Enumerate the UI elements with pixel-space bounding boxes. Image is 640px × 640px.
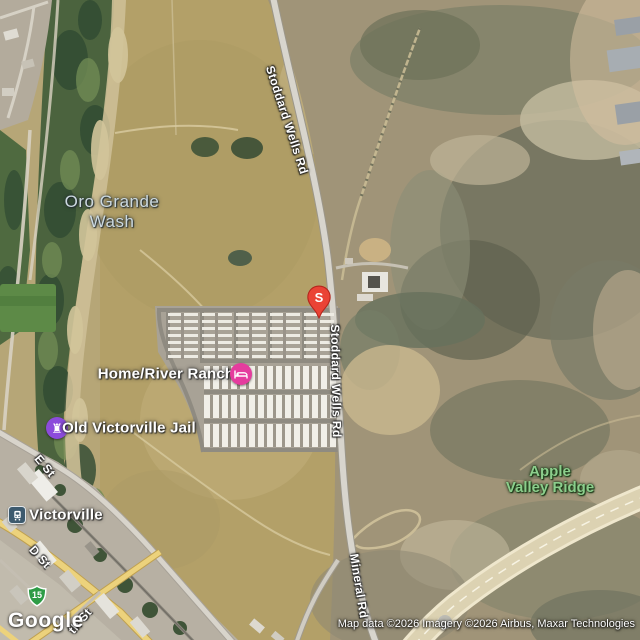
interstate-15-shield: 15 (27, 585, 47, 607)
castle-rook-glyph: ♜ (51, 422, 63, 435)
map-attribution: Map data ©2026 Imagery ©2026 Airbus, Max… (338, 618, 635, 630)
trailer-cluster (168, 313, 198, 359)
label-home-river-ranch[interactable]: Home/River Ranch (98, 366, 235, 383)
shield-route-number: 15 (27, 590, 47, 600)
train-icon (12, 510, 23, 521)
google-logo[interactable]: Google (8, 609, 84, 633)
label-stoddard-wells-rd-mid: Stoddard Wells Rd (328, 324, 344, 437)
label-old-victorville-jail[interactable]: Old Victorville Jail (62, 420, 196, 437)
trailer-row (204, 395, 336, 418)
label-oro-grande-wash: Oro Grande Wash (65, 192, 160, 232)
trailer-cluster (236, 313, 266, 359)
label-apple-valley-ridge: Apple Valley Ridge (506, 464, 594, 496)
lodging-icon[interactable] (230, 363, 252, 385)
bed-icon (234, 369, 248, 380)
trailer-cluster (202, 313, 232, 359)
transit-station-icon[interactable] (8, 506, 26, 524)
trailer-row (204, 424, 336, 447)
marker-label: S (306, 290, 332, 305)
terrain-grass-field (0, 284, 56, 332)
map-marker[interactable]: S (306, 285, 332, 319)
label-victorville-station[interactable]: Victorville (29, 507, 103, 524)
trailer-cluster (270, 313, 300, 359)
map-canvas[interactable]: Oro Grande Wash Apple Valley Ridge Stodd… (0, 0, 640, 640)
